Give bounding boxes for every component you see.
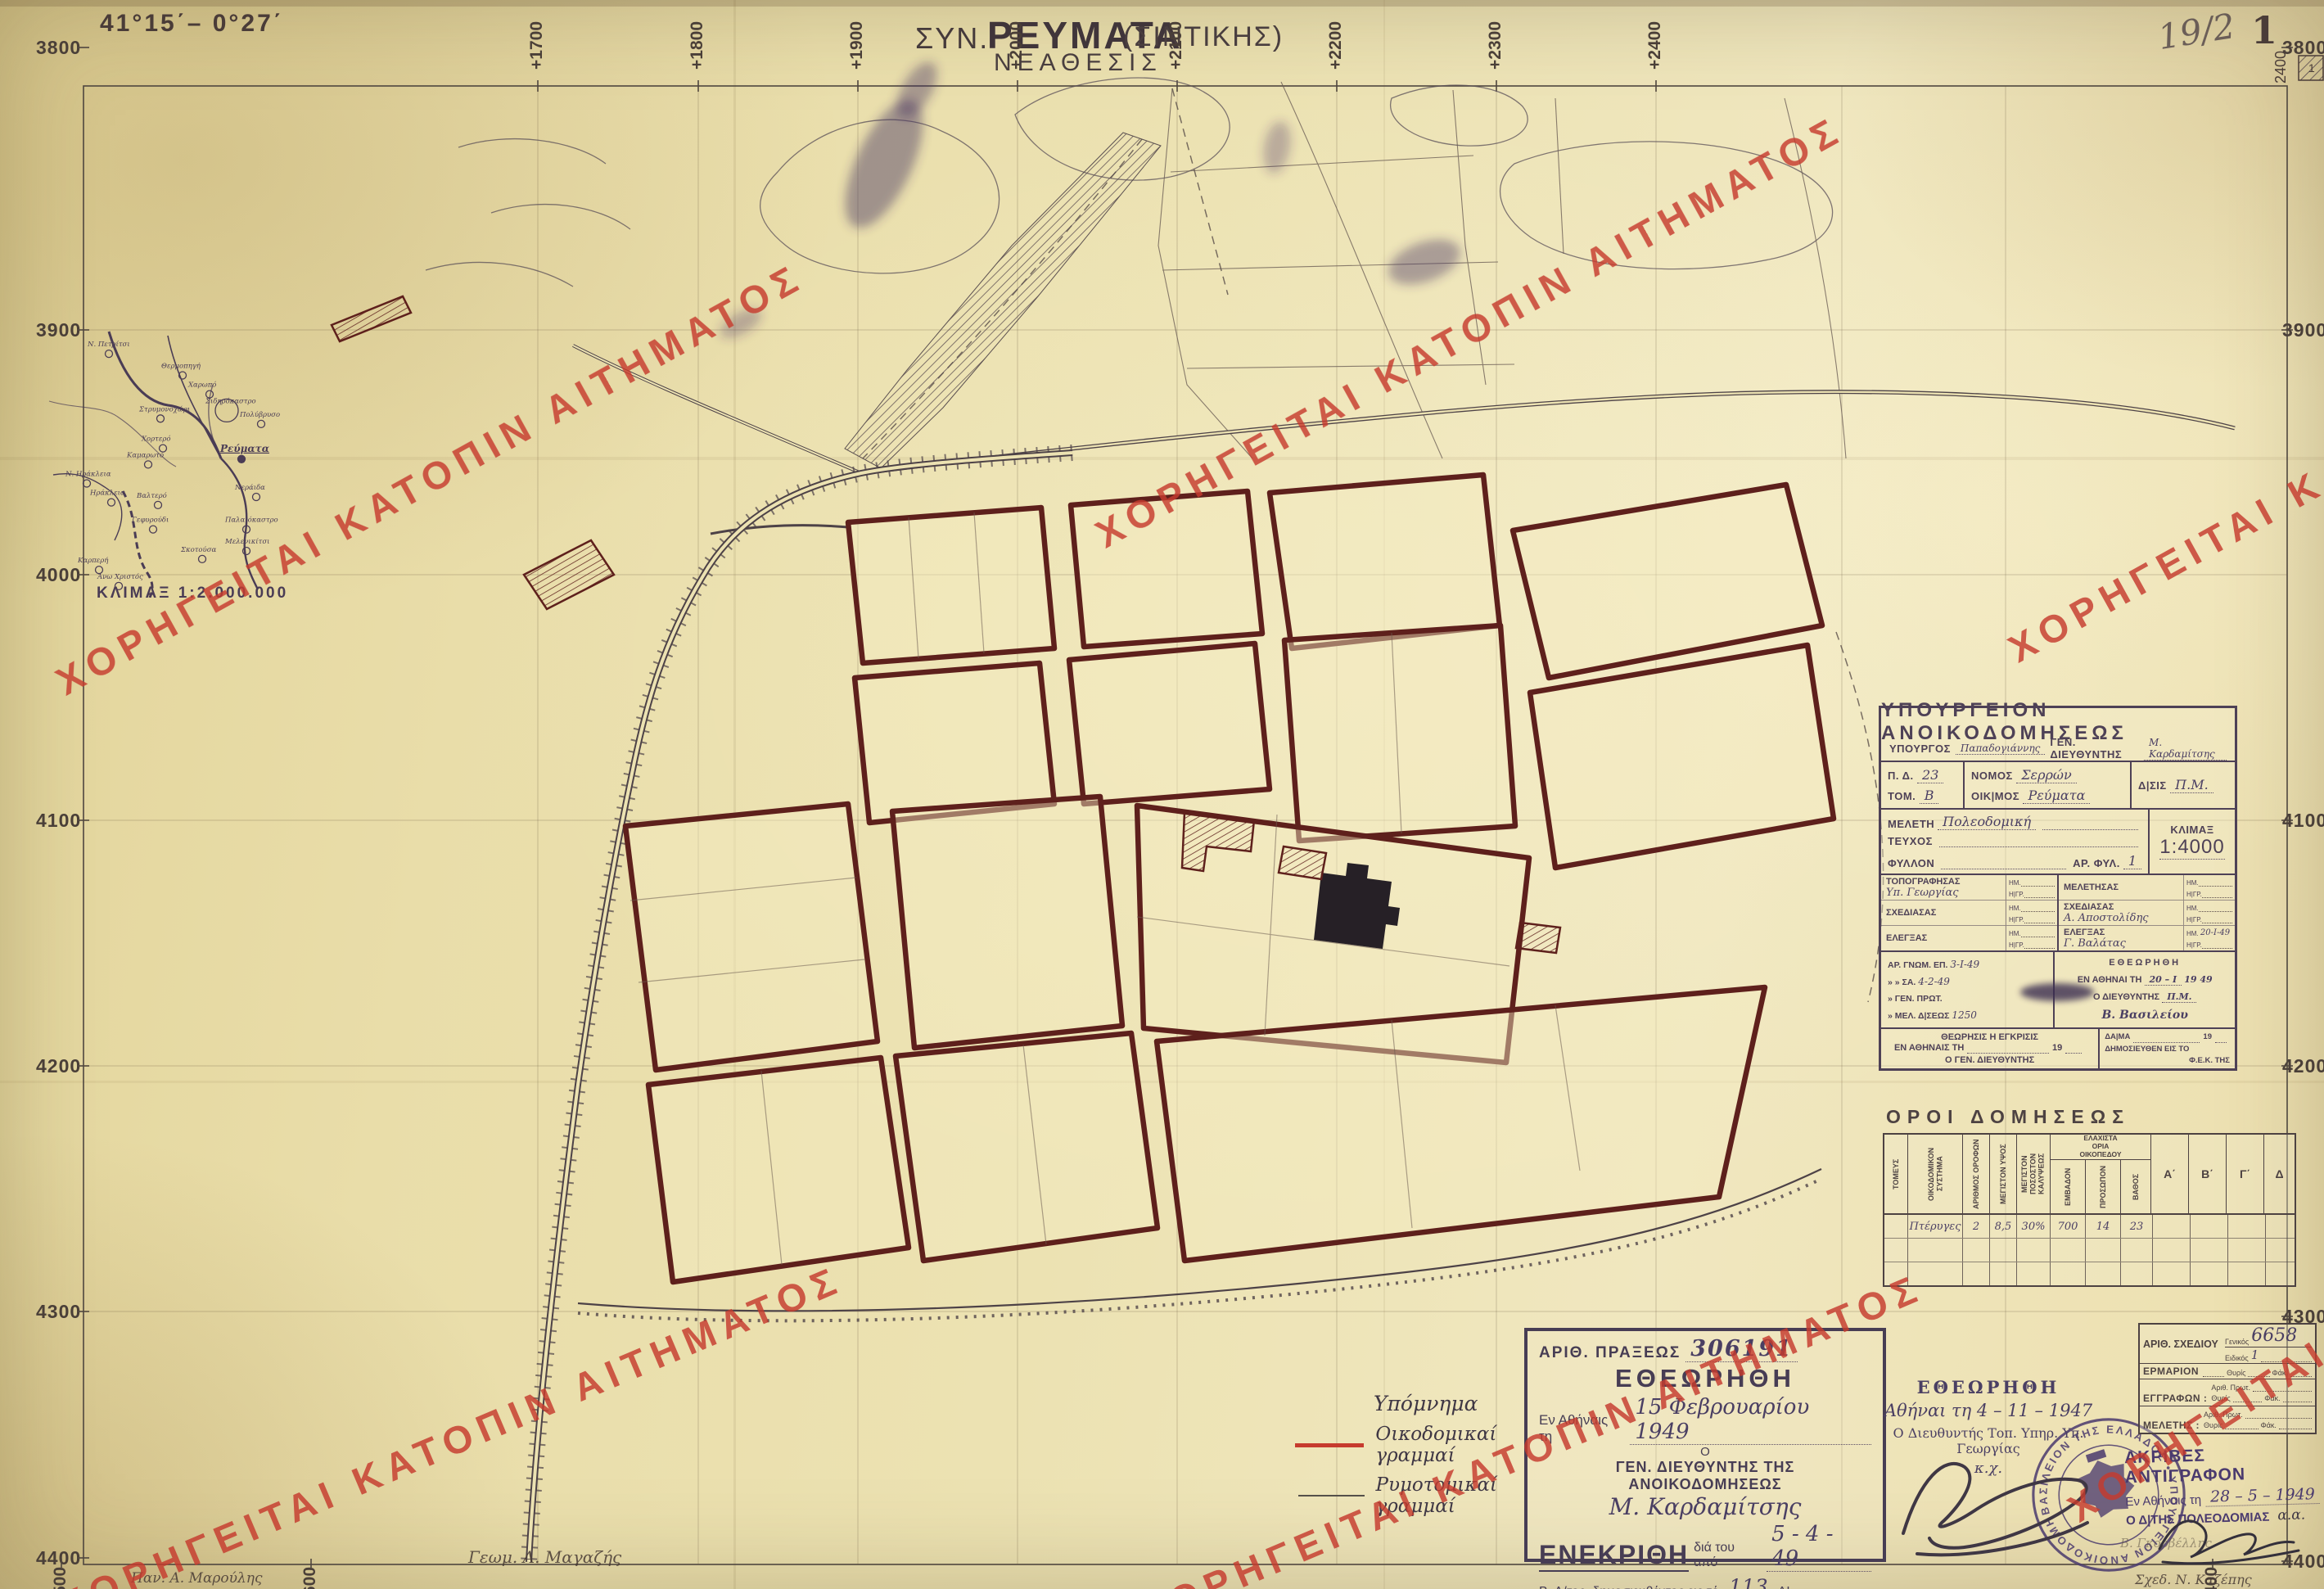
tom-value: Β — [1920, 788, 1939, 804]
col-front: ΠΡΟΣΩΠΟΝ — [2099, 1162, 2107, 1212]
village-dot — [157, 415, 165, 422]
col-area: ΕΜΒΑΔΟΝ — [2064, 1162, 2072, 1212]
enekrithi-date: 5 - 4 - 49 — [1767, 1522, 1871, 1572]
col-group-min-plot: ΕΛΑΧΙΣΤΑ ΟΡΙΑ ΟΙΚΟΠΕΔΟΥ — [2051, 1135, 2150, 1160]
village-label: Σκοτούσα — [180, 545, 216, 554]
general-plan-number: 6658 — [2251, 1325, 2297, 1346]
pd-value: 23 — [1917, 767, 1943, 783]
minister-name: Παπαδογιάννης — [1956, 743, 2046, 755]
dsis-label: Δ|ΣΙΣ — [2138, 779, 2167, 792]
arfyl-label: ΑΡ. ΦΥΛ. — [2073, 857, 2120, 869]
director-line: ΓΕΝ. ΔΙΕΥΘΥΝΤΗΣ ΤΗΣ ΑΝΟΙΚΟΔΟΜΗΣΕΩΣ — [1539, 1459, 1871, 1493]
elegxas2-value: Γ. Βαλάτας — [2064, 937, 2178, 950]
gendir-name: Μ. Καρδαμίτσης — [2144, 737, 2227, 761]
minister-label: ΥΠΟΥΡΓΟΣ — [1889, 743, 1951, 755]
staff-section: ΤΟΠΟΓΡΑΦΗΣΑΣ Υπ. Γεωργίας ΗΜ.Η|ΓΡ. ΣΧΕΔΙ… — [1881, 873, 2235, 950]
oroi-data-row: Πτέρυγες 2 8,5 30% 700 14 23 — [1884, 1215, 2295, 1239]
village-label: Άνω Χριστός — [97, 572, 143, 581]
meleti-value: Πολεοδομική — [1938, 814, 2036, 830]
col-floors: ΑΡΙΘΜΟΣ ΟΡΟΦΩΝ — [1972, 1136, 1980, 1212]
village-label: Πολύβρυσο — [239, 410, 280, 419]
ministry-info-table: ΥΠΟΥΡΓΕΙΟΝ ΑΝΟΙΚΟΔΟΜΗΣΕΩΣ ΥΠΟΥΡΓΟΣ Παπαδ… — [1879, 706, 2237, 1071]
credit-left: Παν. Α. Μαρούλης — [131, 1570, 262, 1587]
copy-stamp-title: ΑΚΡΙΒΕΣ ΑΝΤΙΓΡΑΦΟΝ — [2124, 1443, 2324, 1487]
col-c: Γ΄ — [2227, 1135, 2264, 1213]
director-signature-name: Β. Βασιλείου — [2101, 1009, 2187, 1022]
village-label: Σιδηρόκαστρο — [205, 396, 256, 405]
nomos-value: Σερρών — [2016, 767, 2076, 783]
nomos-label: ΝΟΜΟΣ — [1971, 770, 2013, 782]
oroi-empty-row — [1884, 1239, 2295, 1262]
town-blocks — [625, 475, 1834, 1282]
oikismos-value: Ρεύματα — [2023, 788, 2090, 804]
village-label: Ν. Πετρίτσι — [87, 340, 130, 349]
village-label: Γεφυρούδι — [131, 516, 169, 525]
gazette-number: 113 — [1724, 1575, 1773, 1589]
approval-date-line: Αθήναι τη 4 – 11 – 1947 — [1871, 1401, 2105, 1420]
eggrafon-label: ΕΓΓΡΑΦΩΝ : — [2143, 1393, 2207, 1404]
village-label: Καρπερή — [77, 556, 109, 565]
pd-label: Π. Δ. — [1888, 770, 1914, 782]
etheorithi-small-title: ΕΘΕΩΡΗΘΗ — [2109, 958, 2181, 968]
opinion-section: ΑΡ. ΓΝΩΜ. ΕΠ. 3-Ι-49 » » ΣΑ. 4-2-49 » ΓΕ… — [1881, 950, 2235, 1027]
village-dot — [199, 555, 206, 562]
praxis-label: ΑΡΙΘ. ΠΡΑΞΕΩΣ — [1539, 1344, 1681, 1362]
kardamitsis-signature: Μ. Καρδαμίτσης — [1539, 1493, 1871, 1520]
village-label: Χορτερό — [141, 435, 171, 444]
meletis-label: ΜΕΛΕΤΗΣ : — [2143, 1420, 2200, 1431]
minister-row: ΥΠΟΥΡΓΟΣ Παπαδογιάννης ΓΕΝ. ΔΙΕΥΘΥΝΤΗΣ Μ… — [1881, 736, 2235, 761]
col-system: ΟΙΚΟΔΟΜΙΚΟΝ ΣΥΣΤΗΜΑ — [1927, 1136, 1944, 1212]
tom-label: ΤΟΜ. — [1888, 790, 1916, 802]
map-sheet: ΚοίμησιςΚΤΙΡΙΑ ΚΟΙΝΗΣΕΞΥΠΗΡΕΤΗΣΕΩΣΔΙΟΙΚΗ… — [0, 0, 2324, 1589]
red-line-swatch — [1295, 1443, 1364, 1447]
approval-stamp-box: ΑΡΙΘ. ΠΡΑΞΕΩΣ 306191 ΕΘΕΩΡΗΘΗ Εν Αθήναις… — [1524, 1328, 1886, 1562]
meletisas-label: ΜΕΛΕΤΗΣΑΣ — [2064, 883, 2178, 892]
village-dot — [238, 455, 246, 463]
village-label: Ρεύματα — [219, 443, 269, 454]
plan-no-label: ΑΡΙΘ. ΣΧΕΔΙΟΥ — [2140, 1325, 2222, 1363]
building-terms-table: ΟΡΟΙ ΔΟΜΗΣΕΩΣ ΤΟΜΕΥΣ ΟΙΚΟΔΟΜΙΚΟΝ ΣΥΣΤΗΜΑ… — [1883, 1104, 2296, 1287]
svg-text:1: 1 — [2308, 61, 2315, 74]
index-key-box: 1 — [2299, 56, 2323, 80]
village-dot — [150, 526, 157, 533]
gendir-label: ΓΕΝ. ΔΙΕΥΘΥΝΤΗΣ — [2050, 736, 2139, 761]
dsis-value: Π.Μ. — [2170, 777, 2213, 793]
special-plan-number: 1 — [2251, 1347, 2259, 1362]
enekrithi-title: ΕΝΕΚΡΙΘΗ — [1539, 1540, 1689, 1572]
village-dot — [106, 350, 113, 358]
praxis-number: 306191 — [1685, 1336, 1798, 1362]
village-label: Καμαρωτό — [126, 450, 164, 459]
ink-blot — [2020, 983, 2094, 1001]
etheorithi-title: ΕΘΕΩΡΗΘΗ — [1539, 1364, 1871, 1393]
meleti-label: ΜΕΛΕΤΗ — [1888, 818, 1934, 830]
topo-value: Υπ. Γεωργίας — [1886, 887, 2001, 899]
col-height: ΜΕΓΙΣΤΟΝ ΥΨΟΣ — [1999, 1136, 2007, 1212]
ermarion-label: ΕΡΜΑΡΙΟΝ — [2143, 1366, 2199, 1377]
decree-row: Π. Δ. 23 ΤΟΜ. Β ΝΟΜΟΣ Σερρών ΟΙΚ|ΜΟΣ Ρεύ… — [1881, 761, 2235, 810]
village-dot — [253, 494, 260, 501]
village-label: Μελενικίτσι — [224, 537, 269, 546]
approval-section: ΘΕΩΡΗΣΙΣ Η ΕΓΚΡΙΣΙΣ ΕΝ ΑΘΗΝΑΙΣ ΤΗ19 Ο ΓΕ… — [1881, 1027, 2235, 1068]
village-label: Παλαιόκαστρο — [224, 516, 278, 525]
elegxas2-date: 20-Ι-49 — [2200, 928, 2230, 937]
oroi-empty-row — [1884, 1262, 2295, 1285]
village-label: Ν. Ηράκλεια — [65, 470, 111, 479]
village-label: Χαρωπό — [187, 381, 216, 390]
topo-label: ΤΟΠΟΓΡΑΦΗΣΑΣ — [1886, 877, 2001, 887]
teuxos-label: ΤΕΥΧΟΣ — [1888, 835, 1933, 847]
large-signature — [1883, 1431, 2112, 1574]
village-dot — [155, 501, 162, 508]
village-dot — [258, 420, 265, 427]
oikismos-label: ΟΙΚ|ΜΟΣ — [1971, 790, 2019, 802]
village-label: Στρυμονοχώρι — [138, 404, 190, 413]
village-label: Ηράκλεια — [89, 489, 125, 498]
col-depth: ΒΑΘΟΣ — [2132, 1162, 2140, 1212]
field-boundaries — [1158, 82, 1846, 458]
col-d: Δ — [2264, 1135, 2295, 1213]
approval-date: 15 Φεβρουαρίου 1949 — [1630, 1395, 1871, 1445]
village-label: Νεράιδα — [234, 483, 265, 492]
sxediasas2-value: Α. Αποστολίδης — [2064, 912, 2178, 924]
plan-number-box: ΑΡΙΘ. ΣΧΕΔΙΟΥ Γενικός 6658 Ειδικός 1 ΕΡΜ… — [2138, 1323, 2317, 1434]
col-b: Β΄ — [2189, 1135, 2227, 1213]
copy-stamp-signature — [2150, 1501, 2313, 1575]
sxediasas-label: ΣΧΕΔΙΑΣΑΣ — [1886, 908, 2001, 918]
arfyl-value: 1 — [2123, 853, 2141, 869]
scale-cell: ΚΛΙΜΑΞ 1:4000 — [2148, 810, 2235, 873]
study-rows: ΜΕΛΕΤΗ Πολεοδομική ΤΕΥΧΟΣ ΦΥΛΛΟΝ ΑΡ. ΦΥΛ… — [1881, 810, 2235, 873]
thin-line-swatch — [1298, 1495, 1365, 1496]
village-label: Βαλτερό — [136, 491, 167, 500]
village-dot — [145, 461, 152, 468]
village-dot — [108, 499, 115, 506]
ministry-title: ΥΠΟΥΡΓΕΙΟΝ ΑΝΟΙΚΟΔΟΜΗΣΕΩΣ — [1881, 708, 2235, 736]
surveyor-credit: Γεωμ. Α. Μαγαζής — [468, 1547, 621, 1567]
village-label: Θερμοπηγή — [161, 362, 201, 371]
col-tomeus: ΤΟΜΕΥΣ — [1892, 1136, 1900, 1212]
fyllon-label: ΦΥΛΛΟΝ — [1888, 857, 1934, 869]
col-a: Α΄ — [2151, 1135, 2189, 1213]
klimax-label: ΚΛΙΜΑΞ — [2170, 824, 2213, 836]
klimax-value: 1:4000 — [2159, 836, 2224, 860]
elegxas-label: ΕΛΕΓΞΑΣ — [1886, 933, 2001, 943]
village-dot — [115, 582, 123, 589]
oroi-title: ΟΡΟΙ ΔΟΜΗΣΕΩΣ — [1883, 1104, 2296, 1133]
village-dot — [83, 480, 91, 487]
col-coverage: ΜΕΓΙΣΤΟΝ ΠΟΣΟΣΤΟΝ ΚΑΛΥΨΕΩΣ — [2020, 1136, 2046, 1212]
inset-location-map: Ν. ΠετρίτσιΘερμοπηγήΧαρωπόΣιδηρόκαστροΠο… — [45, 327, 291, 598]
